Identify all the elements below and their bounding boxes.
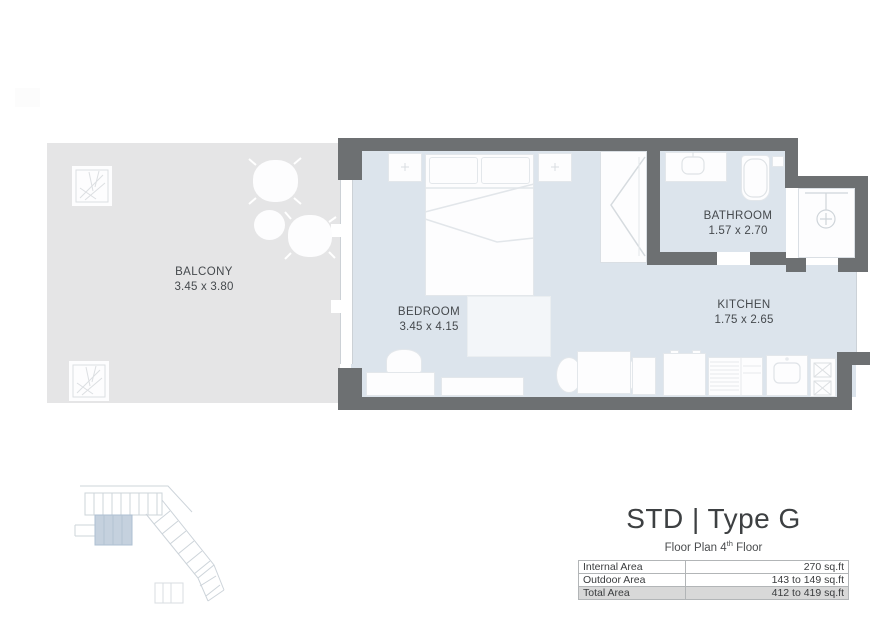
bed-pillow <box>429 157 478 184</box>
bathtub-icon <box>741 155 770 201</box>
window-mullion <box>331 300 341 313</box>
plan-subtitle: Floor Plan 4th Floor <box>578 539 849 554</box>
vanity-sink-icon <box>665 152 727 182</box>
wall-shower-top <box>785 176 868 188</box>
room-dims: 1.75 x 2.65 <box>674 313 814 328</box>
wall-top <box>338 138 798 151</box>
kitchen-glass-edge <box>856 272 857 352</box>
patio-chair-icon <box>288 215 332 257</box>
room-name: BATHROOM <box>668 209 808 224</box>
wall-corner-br-stub <box>837 352 870 365</box>
plan-title: STD | Type G <box>578 503 849 535</box>
room-name: BALCONY <box>134 265 274 280</box>
window-mullion <box>331 224 341 237</box>
dining-table-icon <box>577 351 631 394</box>
row-value: 143 to 149 sq.ft <box>686 573 849 586</box>
nightstand <box>388 153 422 182</box>
key-plan-highlighted-unit <box>95 515 132 545</box>
row-value: 412 to 419 sq.ft <box>686 586 849 599</box>
room-name: KITCHEN <box>674 298 814 313</box>
bed-pillow <box>481 157 530 184</box>
closet <box>600 151 647 263</box>
wall-bottom <box>338 397 852 410</box>
area-table: Internal Area 270 sq.ft Outdoor Area 143… <box>578 560 849 600</box>
table-row-outdoor-area: Outdoor Area 143 to 149 sq.ft <box>579 573 849 586</box>
bathroom-fixture <box>772 156 784 167</box>
planter-box <box>72 166 112 206</box>
room-dims: 1.57 x 2.70 <box>668 224 808 239</box>
balcony-label: BALCONY 3.45 x 3.80 <box>134 265 274 295</box>
kitchen-cabinet <box>632 357 656 395</box>
balcony-window <box>340 172 353 364</box>
wall-corner-tl <box>338 138 362 180</box>
desk <box>366 372 435 396</box>
kitchen-counter <box>708 357 763 396</box>
subtitle-suffix: Floor <box>733 542 762 554</box>
wall-bath-bottom-left <box>647 252 717 265</box>
row-value: 270 sq.ft <box>686 560 849 573</box>
key-plan <box>50 470 250 627</box>
bench <box>441 377 524 396</box>
room-dims: 3.45 x 3.80 <box>134 280 274 295</box>
planter-box <box>69 361 109 401</box>
fridge-handle <box>670 350 679 354</box>
kitchen-sink-icon <box>766 355 808 396</box>
room-name: BEDROOM <box>359 305 499 320</box>
wall-closet-bath-divider <box>647 146 660 265</box>
table-row-total-area: Total Area 412 to 419 sq.ft <box>579 586 849 599</box>
nightstand <box>538 153 572 182</box>
table-row-internal-area: Internal Area 270 sq.ft <box>579 560 849 573</box>
subtitle-prefix: Floor Plan 4 <box>665 542 727 554</box>
patio-chair-icon <box>253 160 298 202</box>
room-dims: 3.45 x 4.15 <box>359 320 499 335</box>
bedroom-label: BEDROOM 3.45 x 4.15 <box>359 305 499 335</box>
title-block: STD | Type G Floor Plan 4th Floor Intern… <box>578 503 849 600</box>
row-label: Outdoor Area <box>579 573 686 586</box>
bathroom-label: BATHROOM 1.57 x 2.70 <box>668 209 808 239</box>
row-label: Internal Area <box>579 560 686 573</box>
kitchen-label: KITCHEN 1.75 x 2.65 <box>674 298 814 328</box>
fridge-icon <box>663 353 706 396</box>
faint-watermark <box>15 88 40 107</box>
fridge-handle <box>692 350 701 354</box>
stove-burners-icon <box>810 358 836 397</box>
row-label: Total Area <box>579 586 686 599</box>
wall-shower-bottom-left <box>786 258 806 272</box>
patio-table-icon <box>254 210 285 240</box>
wall-bath-bottom-right <box>750 252 786 265</box>
floorplan-page: { "plan": { "rooms": [ { "name": "BALCON… <box>0 0 892 627</box>
